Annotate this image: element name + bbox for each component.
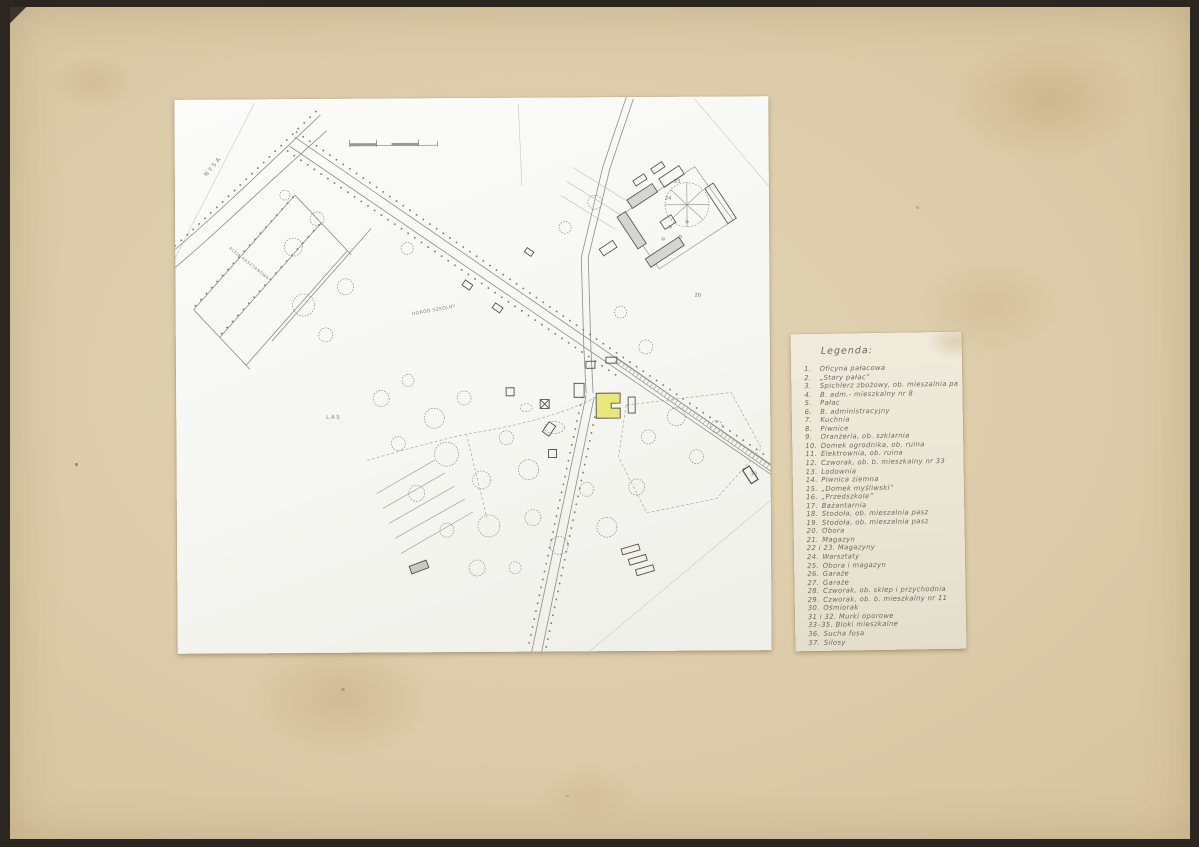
legend-item-number: 8. — [805, 425, 818, 434]
legend-item-number: 14. — [806, 476, 819, 485]
legend-item-label: Kuchnia — [818, 416, 850, 425]
legend-item-label: Magazyny — [835, 544, 875, 553]
legend-item-label: Bażantarnia — [819, 501, 866, 510]
farm-complex — [599, 161, 737, 269]
park-trees — [280, 187, 723, 577]
legend-item-label: Pałac — [818, 399, 841, 407]
legend-item-number: 33–35. — [808, 621, 833, 630]
legend-item-label: Obora — [820, 527, 845, 535]
legend-item-number: 20. — [807, 527, 820, 536]
legend-item-number: 3. — [804, 382, 817, 391]
legend-item-number: 36. — [808, 630, 821, 639]
hatched-road — [616, 356, 771, 472]
legend-item-label: Magazyn — [820, 535, 855, 544]
legend-item-label: Lodownia — [819, 467, 857, 476]
legend-item-number: 29. — [808, 596, 821, 605]
legend-item-number: 30. — [808, 604, 821, 613]
legend-item-number: 26. — [807, 570, 820, 579]
legend-item-number: 6. — [805, 408, 818, 417]
stain-speck — [341, 688, 345, 691]
legend-item-number: 18. — [806, 510, 819, 519]
legend-sheet: Legenda: 1. Oficyna pałacowa2. „Stary pa… — [791, 332, 967, 652]
legend-item-number: 12. — [805, 459, 818, 468]
large-tree — [665, 183, 709, 227]
legend-item-number: 28. — [807, 587, 820, 596]
legend-item-label: Ośmiorak — [821, 604, 859, 613]
legend-item-number: 10. — [805, 442, 818, 451]
legend-item-number: 16. — [806, 493, 819, 502]
legend-item-number: 2. — [804, 373, 817, 382]
palace-complex — [462, 247, 636, 458]
legend-item-number: 25. — [807, 562, 820, 571]
roadside-trees — [174, 108, 767, 652]
legend-item-number: 9. — [805, 433, 818, 442]
ponds — [520, 403, 564, 433]
legend-item-label: Bloki mieszkalne — [833, 620, 898, 629]
legend-item-label: „Stary pałac” — [817, 373, 870, 382]
legend-title: Legenda: — [821, 344, 962, 357]
legend-item: 37. Silosy — [808, 636, 962, 647]
legend-item-label: Stodoła, ob. mieszalnia pasz — [819, 517, 928, 527]
legend-item-number: 5. — [805, 399, 818, 408]
legend-item-number: 37. — [808, 638, 821, 647]
legend-item-label: Piwnica ziemna — [819, 475, 879, 484]
legend-item-number: 11. — [805, 450, 818, 459]
palace-highlight — [596, 393, 620, 418]
scanned-page: NYSAALEJA KASZTANOWAOGRÓD SZKOLNYLAS2324… — [0, 0, 1199, 847]
stain-speck — [916, 206, 919, 209]
legend-list: 1. Oficyna pałacowa2. „Stary pałac”3. Sp… — [804, 363, 962, 647]
legend-item-number: 13. — [806, 468, 819, 477]
legend-item-number: 4. — [804, 391, 817, 400]
legend-item-number: 17. — [806, 502, 819, 511]
legend-item-label: „Przedszkole” — [819, 492, 873, 501]
site-plan-drawing — [174, 96, 771, 654]
legend-item-label: Sucha fosa — [821, 629, 864, 638]
legend-item-label: „Domek myśliwski” — [819, 483, 894, 492]
roads — [174, 96, 771, 654]
legend-item-label: B. adm.- mieszkalny nr 8 — [817, 389, 913, 399]
icehouse-square — [540, 400, 549, 409]
legend-item-number: 1. — [804, 365, 817, 374]
legend-item-label: Murki oporowe — [836, 612, 893, 621]
legend-item-number: 15. — [806, 485, 819, 494]
legend-item-number: 27. — [807, 579, 820, 588]
crease-line — [518, 104, 522, 186]
legend-item-label: Oficyna pałacowa — [817, 364, 885, 373]
scale-bar — [350, 139, 438, 147]
orchard-rows — [375, 167, 629, 554]
stain-speck — [566, 795, 569, 797]
map-sheet: NYSAALEJA KASZTANOWAOGRÓD SZKOLNYLAS2324… — [174, 96, 771, 654]
legend-item-label: Garaże — [820, 578, 849, 586]
legend-item-label: B. administracyjny — [818, 407, 890, 416]
legend-item-label: Domek ogrodnika, ob. ruina — [818, 440, 925, 450]
legend-item-label: Warsztaty — [820, 552, 860, 561]
legend-item-label: Czworak, ob. b. mieszkalny nr 33 — [818, 457, 945, 467]
legend-item-label: Obora i magazyn — [820, 560, 886, 569]
legend-item-number: 19. — [806, 519, 819, 528]
legend-item-number: 24. — [807, 553, 820, 562]
cardboard-backing: NYSAALEJA KASZTANOWAOGRÓD SZKOLNYLAS2324… — [10, 7, 1190, 839]
legend-item-number: 7. — [805, 416, 818, 425]
legend-item-label: Piwnice — [818, 424, 849, 432]
tracing-sheet-edges — [174, 98, 771, 654]
legend-item-label: Silosy — [821, 638, 846, 646]
legend-item-number: 21. — [807, 536, 820, 545]
stain-speck — [75, 463, 78, 466]
legend-item-label: Czworak, ob. b. mieszkalny nr 11 — [821, 594, 948, 604]
legend-item-label: Garaże — [820, 570, 849, 578]
